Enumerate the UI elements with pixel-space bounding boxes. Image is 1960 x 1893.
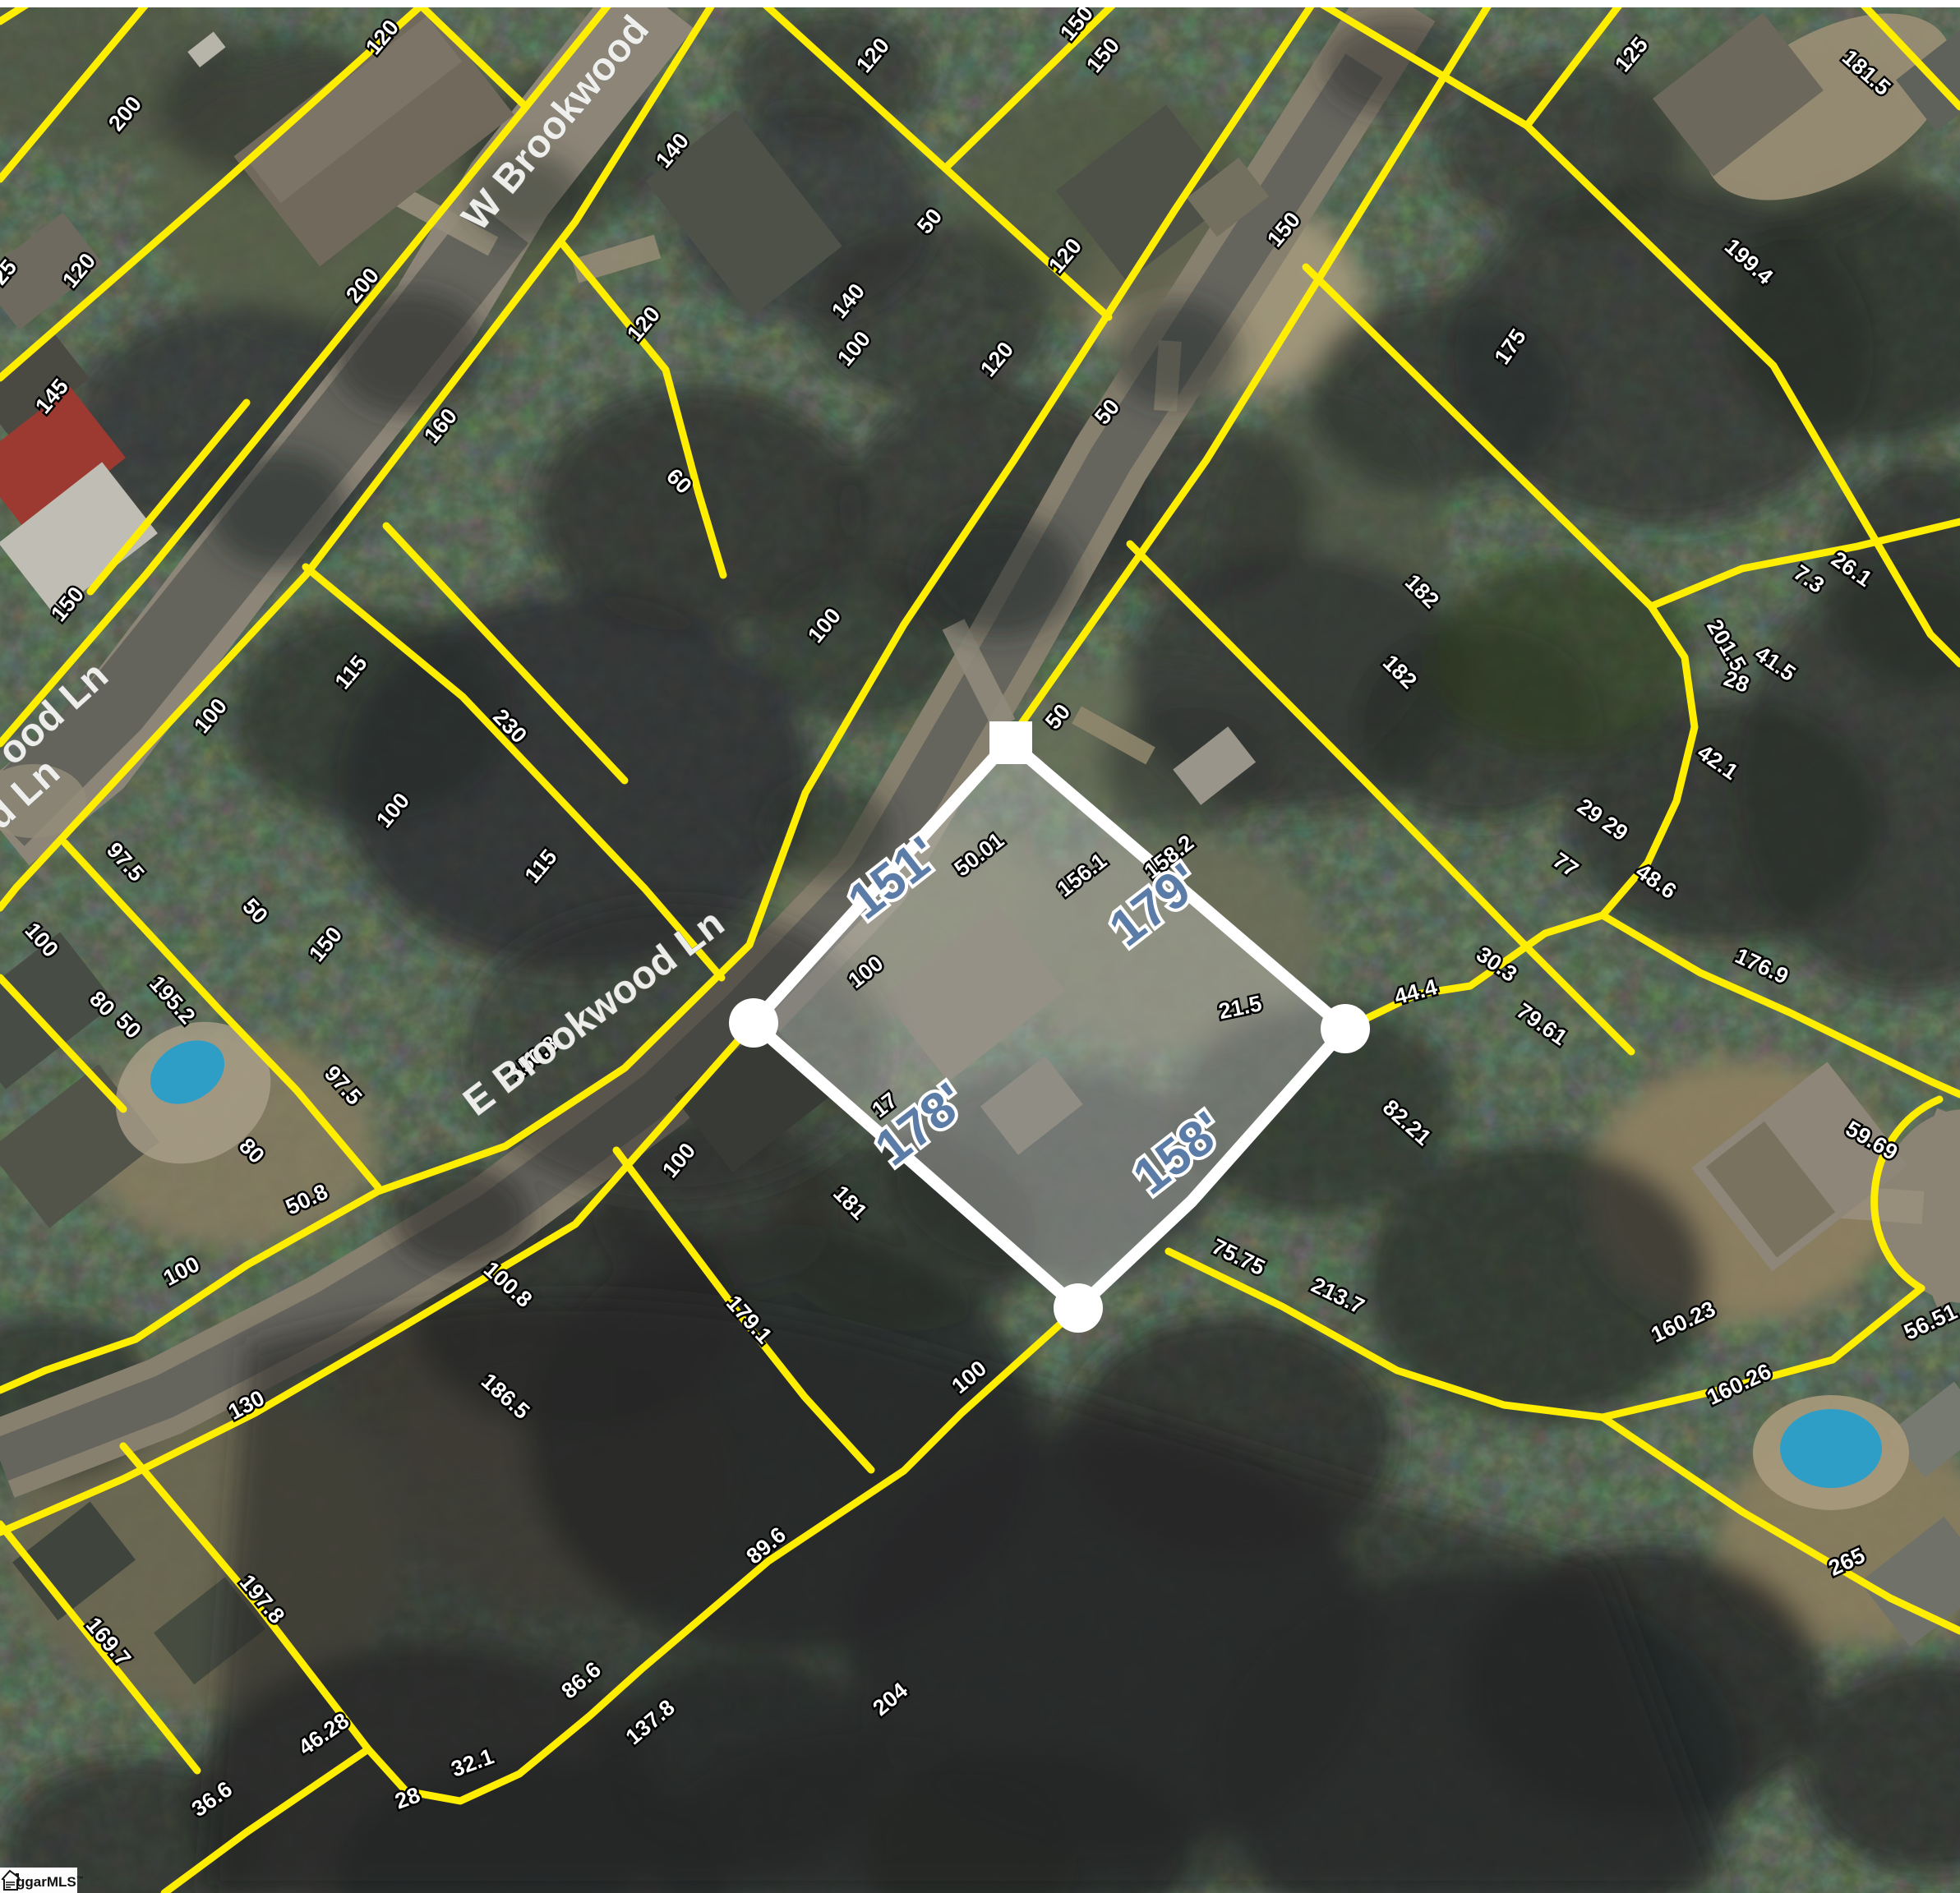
svg-text:ggarMLS™: ggarMLS™ xyxy=(16,1874,84,1890)
